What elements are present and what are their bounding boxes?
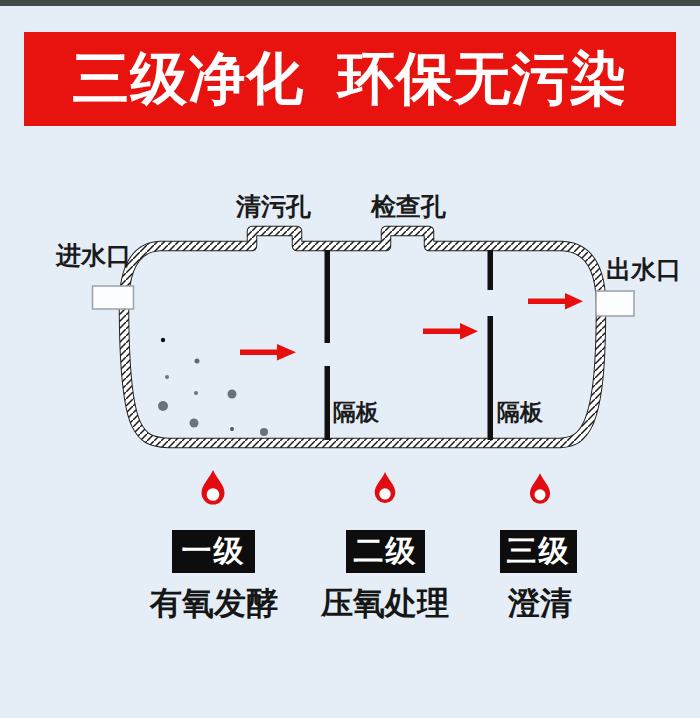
- inlet-pipe: [93, 286, 134, 309]
- stage-caption-1: 有氧发酵: [129, 582, 299, 626]
- baffle-label-2: 隔板: [497, 400, 543, 425]
- baffle-label-1: 隔板: [333, 400, 379, 425]
- baffle-1: [325, 250, 331, 440]
- inspection-hole-label: 检查孔: [371, 193, 446, 221]
- drop-icon-2: [375, 472, 396, 503]
- stage-badge-1: 一级: [172, 530, 255, 573]
- stage-caption-2: 压氧处理: [300, 582, 470, 626]
- flow-arrow-3: [528, 293, 583, 310]
- outlet-label: 出水口: [606, 256, 681, 284]
- poster: 三级净化 环保无污染: [0, 0, 700, 718]
- stage-caption-3: 澄清: [455, 582, 625, 626]
- stage-badge-2: 二级: [346, 530, 425, 573]
- outlet-pipe: [596, 291, 634, 316]
- stage-badge-3: 三级: [500, 530, 577, 573]
- inlet-label: 进水口: [56, 242, 131, 270]
- flow-arrow-2: [423, 323, 478, 340]
- baffle-2: [488, 250, 494, 440]
- flow-arrow-1: [240, 344, 296, 361]
- drop-icon-3: [530, 473, 550, 503]
- drop-icon-1: [202, 470, 225, 505]
- cleanout-hole-label: 清污孔: [236, 193, 311, 221]
